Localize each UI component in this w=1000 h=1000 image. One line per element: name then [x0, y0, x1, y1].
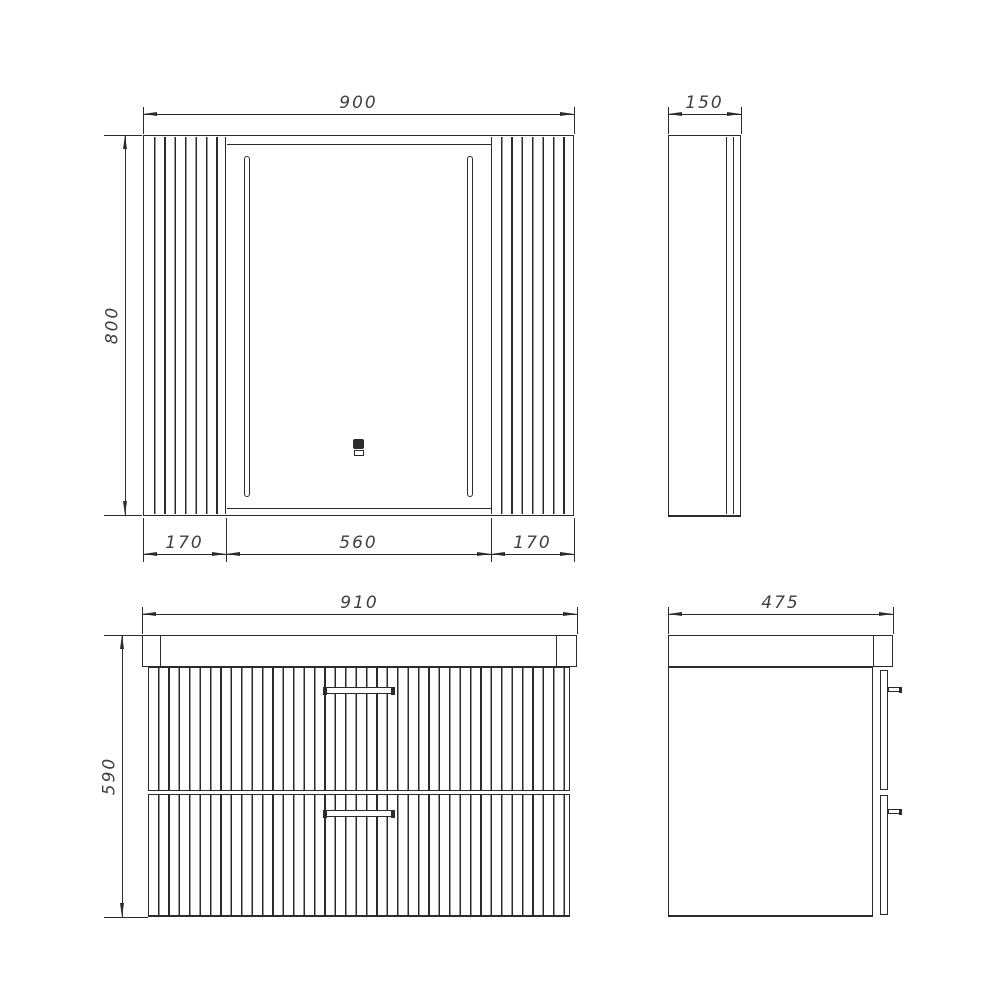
arrowhead-down: [120, 903, 124, 917]
arrowhead-left: [226, 552, 240, 556]
extension-line: [104, 515, 142, 516]
mirror-right-fluted-panel: [491, 137, 572, 514]
arrowhead-right: [727, 112, 741, 116]
mirror-door-edge-line: [733, 137, 734, 514]
extension-line: [104, 917, 148, 918]
countertop-edge-profile: [873, 636, 874, 666]
arrowhead-right: [563, 612, 577, 616]
mirror-inner-edge-top: [227, 144, 491, 145]
mirror-left-fluted-panel: [145, 137, 226, 514]
drawer-handle-side-bottom: [888, 809, 902, 814]
dimension-right-panel-width: 170: [491, 554, 574, 555]
extension-line: [577, 607, 578, 634]
extension-line: [574, 107, 575, 134]
drawer-handle-side-top: [888, 687, 902, 692]
arrowhead-left: [143, 112, 157, 116]
arrowhead-left: [143, 552, 157, 556]
mirror-inner-edge-bottom: [227, 508, 491, 509]
arrowhead-up: [123, 135, 127, 149]
vanity-side-countertop: [668, 635, 893, 667]
arrowhead-left: [668, 612, 682, 616]
touch-sensor-icon-body: [353, 439, 364, 449]
drawer-handle-top: [323, 687, 395, 694]
countertop-edge-profile-left: [160, 636, 161, 666]
dimension-left-panel-width: 170: [143, 554, 226, 555]
vanity-top-drawer: [148, 667, 570, 791]
arrowhead-right: [560, 552, 574, 556]
arrowhead-right: [477, 552, 491, 556]
dimension-label-560: 560: [336, 535, 380, 552]
countertop-edge-profile-right: [556, 636, 557, 666]
extension-line: [741, 107, 742, 134]
dimension-label-800: 800: [105, 303, 122, 347]
dimension-label-150: 150: [682, 95, 726, 112]
dimension-label-910: 910: [337, 595, 381, 612]
dimension-label-900: 900: [336, 95, 380, 112]
led-strip-left: [244, 156, 250, 497]
dimension-mirror-depth: 150: [668, 114, 741, 115]
dimension-label-590: 590: [102, 754, 119, 798]
arrowhead-left: [142, 612, 156, 616]
dimension-vanity-depth: 475: [668, 614, 893, 615]
mirror-side-outline: [668, 135, 741, 517]
arrowhead-left: [668, 112, 682, 116]
dimension-mirror-width: 900: [143, 114, 574, 115]
drawer-front-top-edge: [880, 670, 888, 790]
extension-line: [893, 607, 894, 634]
arrowhead-right: [212, 552, 226, 556]
dimension-label-170-right: 170: [510, 535, 554, 552]
touch-sensor-icon-base: [354, 450, 364, 456]
arrowhead-down: [123, 501, 127, 515]
arrowhead-right: [879, 612, 893, 616]
extension-line: [574, 518, 575, 562]
arrowhead-up: [120, 635, 124, 649]
dimension-vanity-width: 910: [142, 614, 577, 615]
drawer-handle-bottom: [323, 810, 395, 817]
dimension-vanity-height: 590: [122, 635, 123, 917]
touch-sensor-icon: [353, 439, 365, 455]
arrowhead-right: [560, 112, 574, 116]
dimension-label-475: 475: [758, 595, 802, 612]
led-strip-right: [467, 156, 473, 497]
arrowhead-left: [491, 552, 505, 556]
dimension-mirror-height: 800: [125, 135, 126, 515]
mirror-door-edge-line: [726, 137, 727, 514]
vanity-side-carcass: [668, 667, 873, 917]
drawer-front-bottom-edge: [880, 795, 888, 915]
vanity-countertop: [142, 635, 577, 667]
dimension-mirror-door-width: 560: [226, 554, 491, 555]
technical-drawing-canvas: 900 800 170 560 170: [0, 0, 1000, 1000]
dimension-label-170-left: 170: [162, 535, 206, 552]
